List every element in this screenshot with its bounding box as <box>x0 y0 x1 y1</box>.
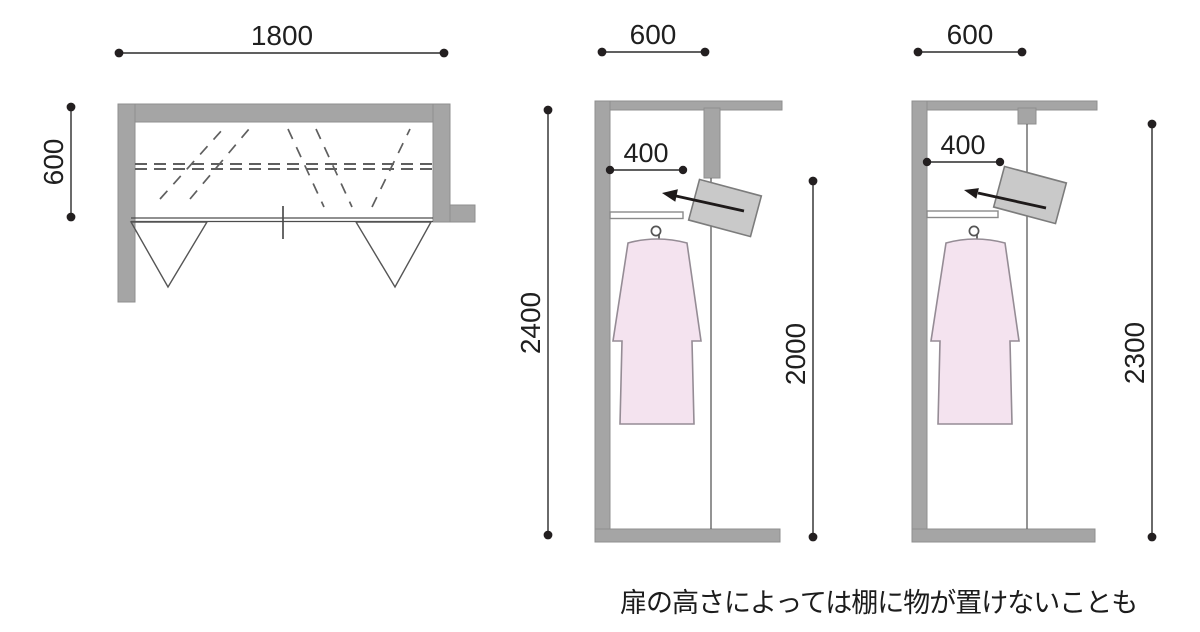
section-b-floor <box>912 529 1095 542</box>
section-b-lintel-block <box>1018 108 1036 124</box>
plan-view: 1800 600 <box>38 20 475 302</box>
section-a-dim-door-height: 2000 <box>780 177 817 542</box>
plan-wall-return <box>450 205 475 222</box>
figure-caption: 扉の高さによっては棚に物が置けないことも <box>620 581 1137 620</box>
dim-dot <box>67 103 76 112</box>
dim-dot <box>440 49 449 58</box>
section-b-ceiling <box>912 101 1097 110</box>
bifold-door-symbols <box>131 222 431 287</box>
section-b-storage-box <box>994 166 1067 223</box>
section-b-shelf <box>927 211 998 218</box>
dim-label-1800: 1800 <box>251 20 313 51</box>
dim-label-400: 400 <box>940 130 985 160</box>
dim-dot <box>115 49 124 58</box>
dim-dot <box>67 213 76 222</box>
hanger-pipe-dashed <box>135 164 433 169</box>
arrowhead <box>662 189 678 202</box>
section-a-lintel-wall <box>704 108 720 178</box>
diagram-svg: 1800 600 <box>0 0 1200 632</box>
dim-label-600: 600 <box>947 19 994 50</box>
section-b-dress <box>931 239 1019 424</box>
dim-label-600: 600 <box>630 19 677 50</box>
section-b-dim-door-height: 2300 <box>1119 120 1156 542</box>
section-b-dim-shelf: 400 <box>923 130 1004 166</box>
plan-wall-right <box>433 104 450 222</box>
closet-dimension-figure: 1800 600 <box>0 0 1200 632</box>
section-a-dim-shelf: 400 <box>606 138 687 174</box>
arrowhead <box>964 188 979 199</box>
plan-dim-width: 1800 <box>115 20 449 57</box>
section-low-door: 600 400 2400 <box>515 19 817 542</box>
section-a-wall-left <box>595 101 610 530</box>
bifold-door-right <box>356 222 431 287</box>
section-high-door: 600 400 2300 <box>912 19 1156 542</box>
section-a-dress <box>613 239 701 424</box>
section-a-ceiling <box>595 101 782 110</box>
plan-wall-top <box>118 104 450 122</box>
section-a-dim-total-height: 2400 <box>515 106 552 540</box>
bifold-door-left <box>131 222 207 287</box>
section-b-dim-depth: 600 <box>914 19 1027 56</box>
section-a-shelf <box>610 212 683 219</box>
plan-wall-left <box>118 104 135 302</box>
section-a-floor <box>595 529 780 542</box>
dim-label-2400: 2400 <box>515 292 546 354</box>
section-a-dim-depth: 600 <box>598 19 710 56</box>
dim-label-400: 400 <box>623 138 668 168</box>
dim-label-2300: 2300 <box>1119 322 1150 384</box>
plan-dim-depth: 600 <box>38 103 75 222</box>
dim-label-2000: 2000 <box>780 323 811 385</box>
dim-label-600: 600 <box>38 139 69 186</box>
